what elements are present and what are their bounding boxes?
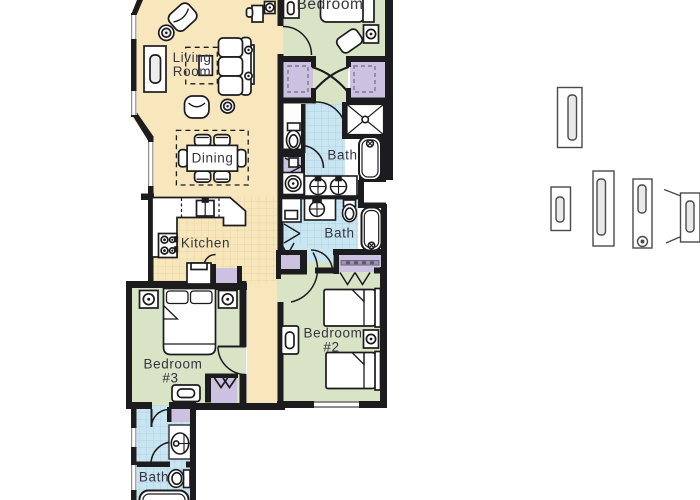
svg-text:#2: #2 <box>323 340 339 355</box>
svg-text:Dining: Dining <box>192 151 234 166</box>
svg-text:Living: Living <box>173 50 212 65</box>
svg-text:Bedroom: Bedroom <box>304 326 363 341</box>
svg-text:Kitchen: Kitchen <box>181 236 230 251</box>
svg-text:#3: #3 <box>162 371 178 386</box>
svg-text:Bath: Bath <box>324 226 354 241</box>
svg-text:Bedroom: Bedroom <box>296 0 363 13</box>
svg-text:Room: Room <box>173 64 211 79</box>
svg-text:Bedroom: Bedroom <box>144 357 203 372</box>
svg-text:Bath: Bath <box>139 470 169 485</box>
svg-text:Bath: Bath <box>327 148 357 163</box>
